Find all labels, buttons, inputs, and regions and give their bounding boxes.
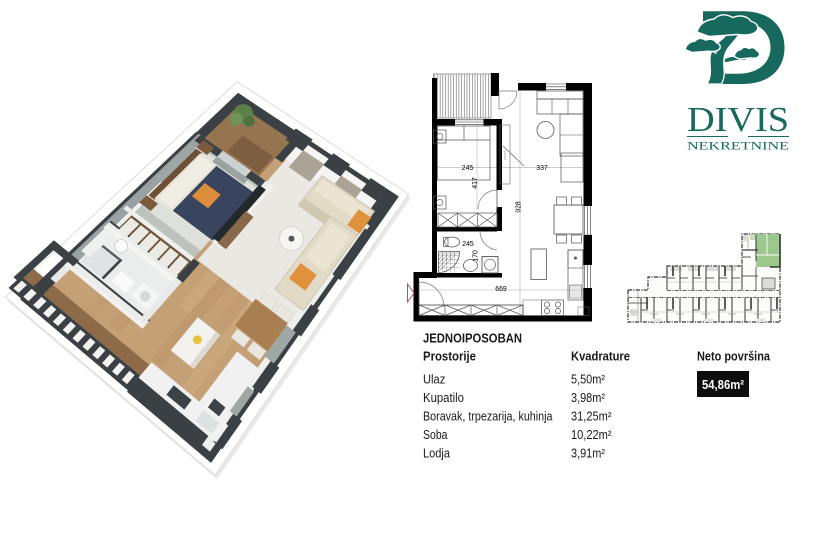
svg-text:DIVIS: DIVIS bbox=[687, 101, 789, 139]
svg-text:Kupatilo: Kupatilo bbox=[423, 391, 464, 405]
svg-text:669: 669 bbox=[495, 286, 507, 293]
svg-text:417: 417 bbox=[472, 177, 479, 189]
svg-text:170: 170 bbox=[473, 250, 480, 262]
svg-text:245: 245 bbox=[462, 241, 474, 248]
svg-text:Soba: Soba bbox=[423, 428, 448, 442]
svg-text:JEDNOIPOSOBAN: JEDNOIPOSOBAN bbox=[423, 331, 522, 346]
svg-text:3,91m²: 3,91m² bbox=[571, 447, 605, 461]
svg-text:928: 928 bbox=[516, 201, 523, 213]
svg-text:3,98m²: 3,98m² bbox=[571, 391, 605, 405]
svg-text:54,86m²: 54,86m² bbox=[702, 377, 745, 392]
svg-text:5,50m²: 5,50m² bbox=[571, 373, 605, 387]
svg-text:Neto površina: Neto površina bbox=[697, 349, 771, 364]
svg-text:Ulaz: Ulaz bbox=[423, 373, 445, 387]
svg-text:Lodja: Lodja bbox=[423, 447, 450, 461]
svg-text:Prostorije: Prostorije bbox=[423, 349, 476, 364]
svg-text:Boravak, trpezarija, kuhinja: Boravak, trpezarija, kuhinja bbox=[423, 410, 553, 424]
svg-text:245: 245 bbox=[462, 165, 474, 172]
svg-text:31,25m²: 31,25m² bbox=[571, 410, 612, 424]
svg-text:10,22m²: 10,22m² bbox=[571, 428, 612, 442]
svg-text:337: 337 bbox=[536, 165, 548, 172]
svg-text:NEKRETNINE: NEKRETNINE bbox=[687, 141, 789, 153]
svg-text:Kvadrature: Kvadrature bbox=[571, 349, 630, 364]
